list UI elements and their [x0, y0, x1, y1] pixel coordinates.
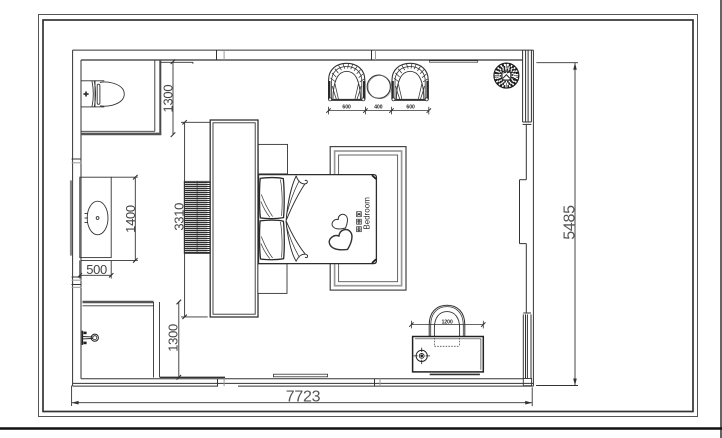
svg-text:3310: 3310 [171, 203, 186, 231]
svg-text:1300: 1300 [160, 85, 175, 113]
svg-text:400: 400 [374, 104, 383, 110]
svg-text:600: 600 [342, 104, 351, 110]
svg-text:5485: 5485 [561, 205, 578, 240]
svg-text:1200: 1200 [442, 319, 453, 325]
svg-text:7723: 7723 [286, 389, 321, 406]
svg-text:1300: 1300 [166, 324, 181, 352]
svg-text:600: 600 [406, 104, 415, 110]
svg-text:Bedroom: Bedroom [362, 197, 371, 230]
svg-text:500: 500 [86, 262, 107, 277]
svg-text:1400: 1400 [123, 205, 138, 233]
